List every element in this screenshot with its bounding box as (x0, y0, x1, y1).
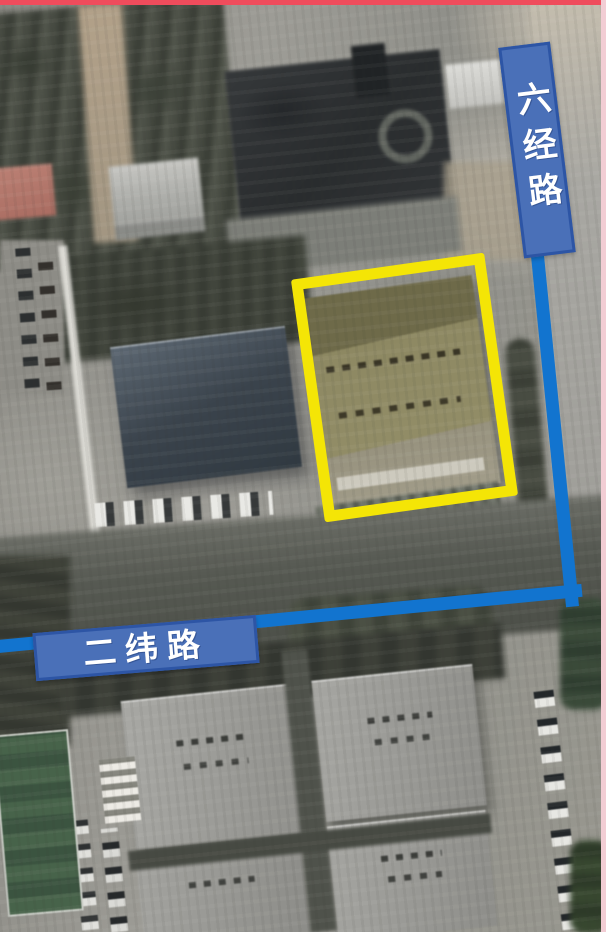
road-label-vertical-text: 六经路 (512, 79, 563, 220)
highlight-box (291, 253, 518, 523)
frame-top-border (0, 0, 606, 5)
frame-right-border (601, 0, 606, 932)
road-label-horizontal-text: 二纬路 (82, 626, 210, 669)
annotated-satellite-map: 六经路 二纬路 (0, 0, 606, 932)
